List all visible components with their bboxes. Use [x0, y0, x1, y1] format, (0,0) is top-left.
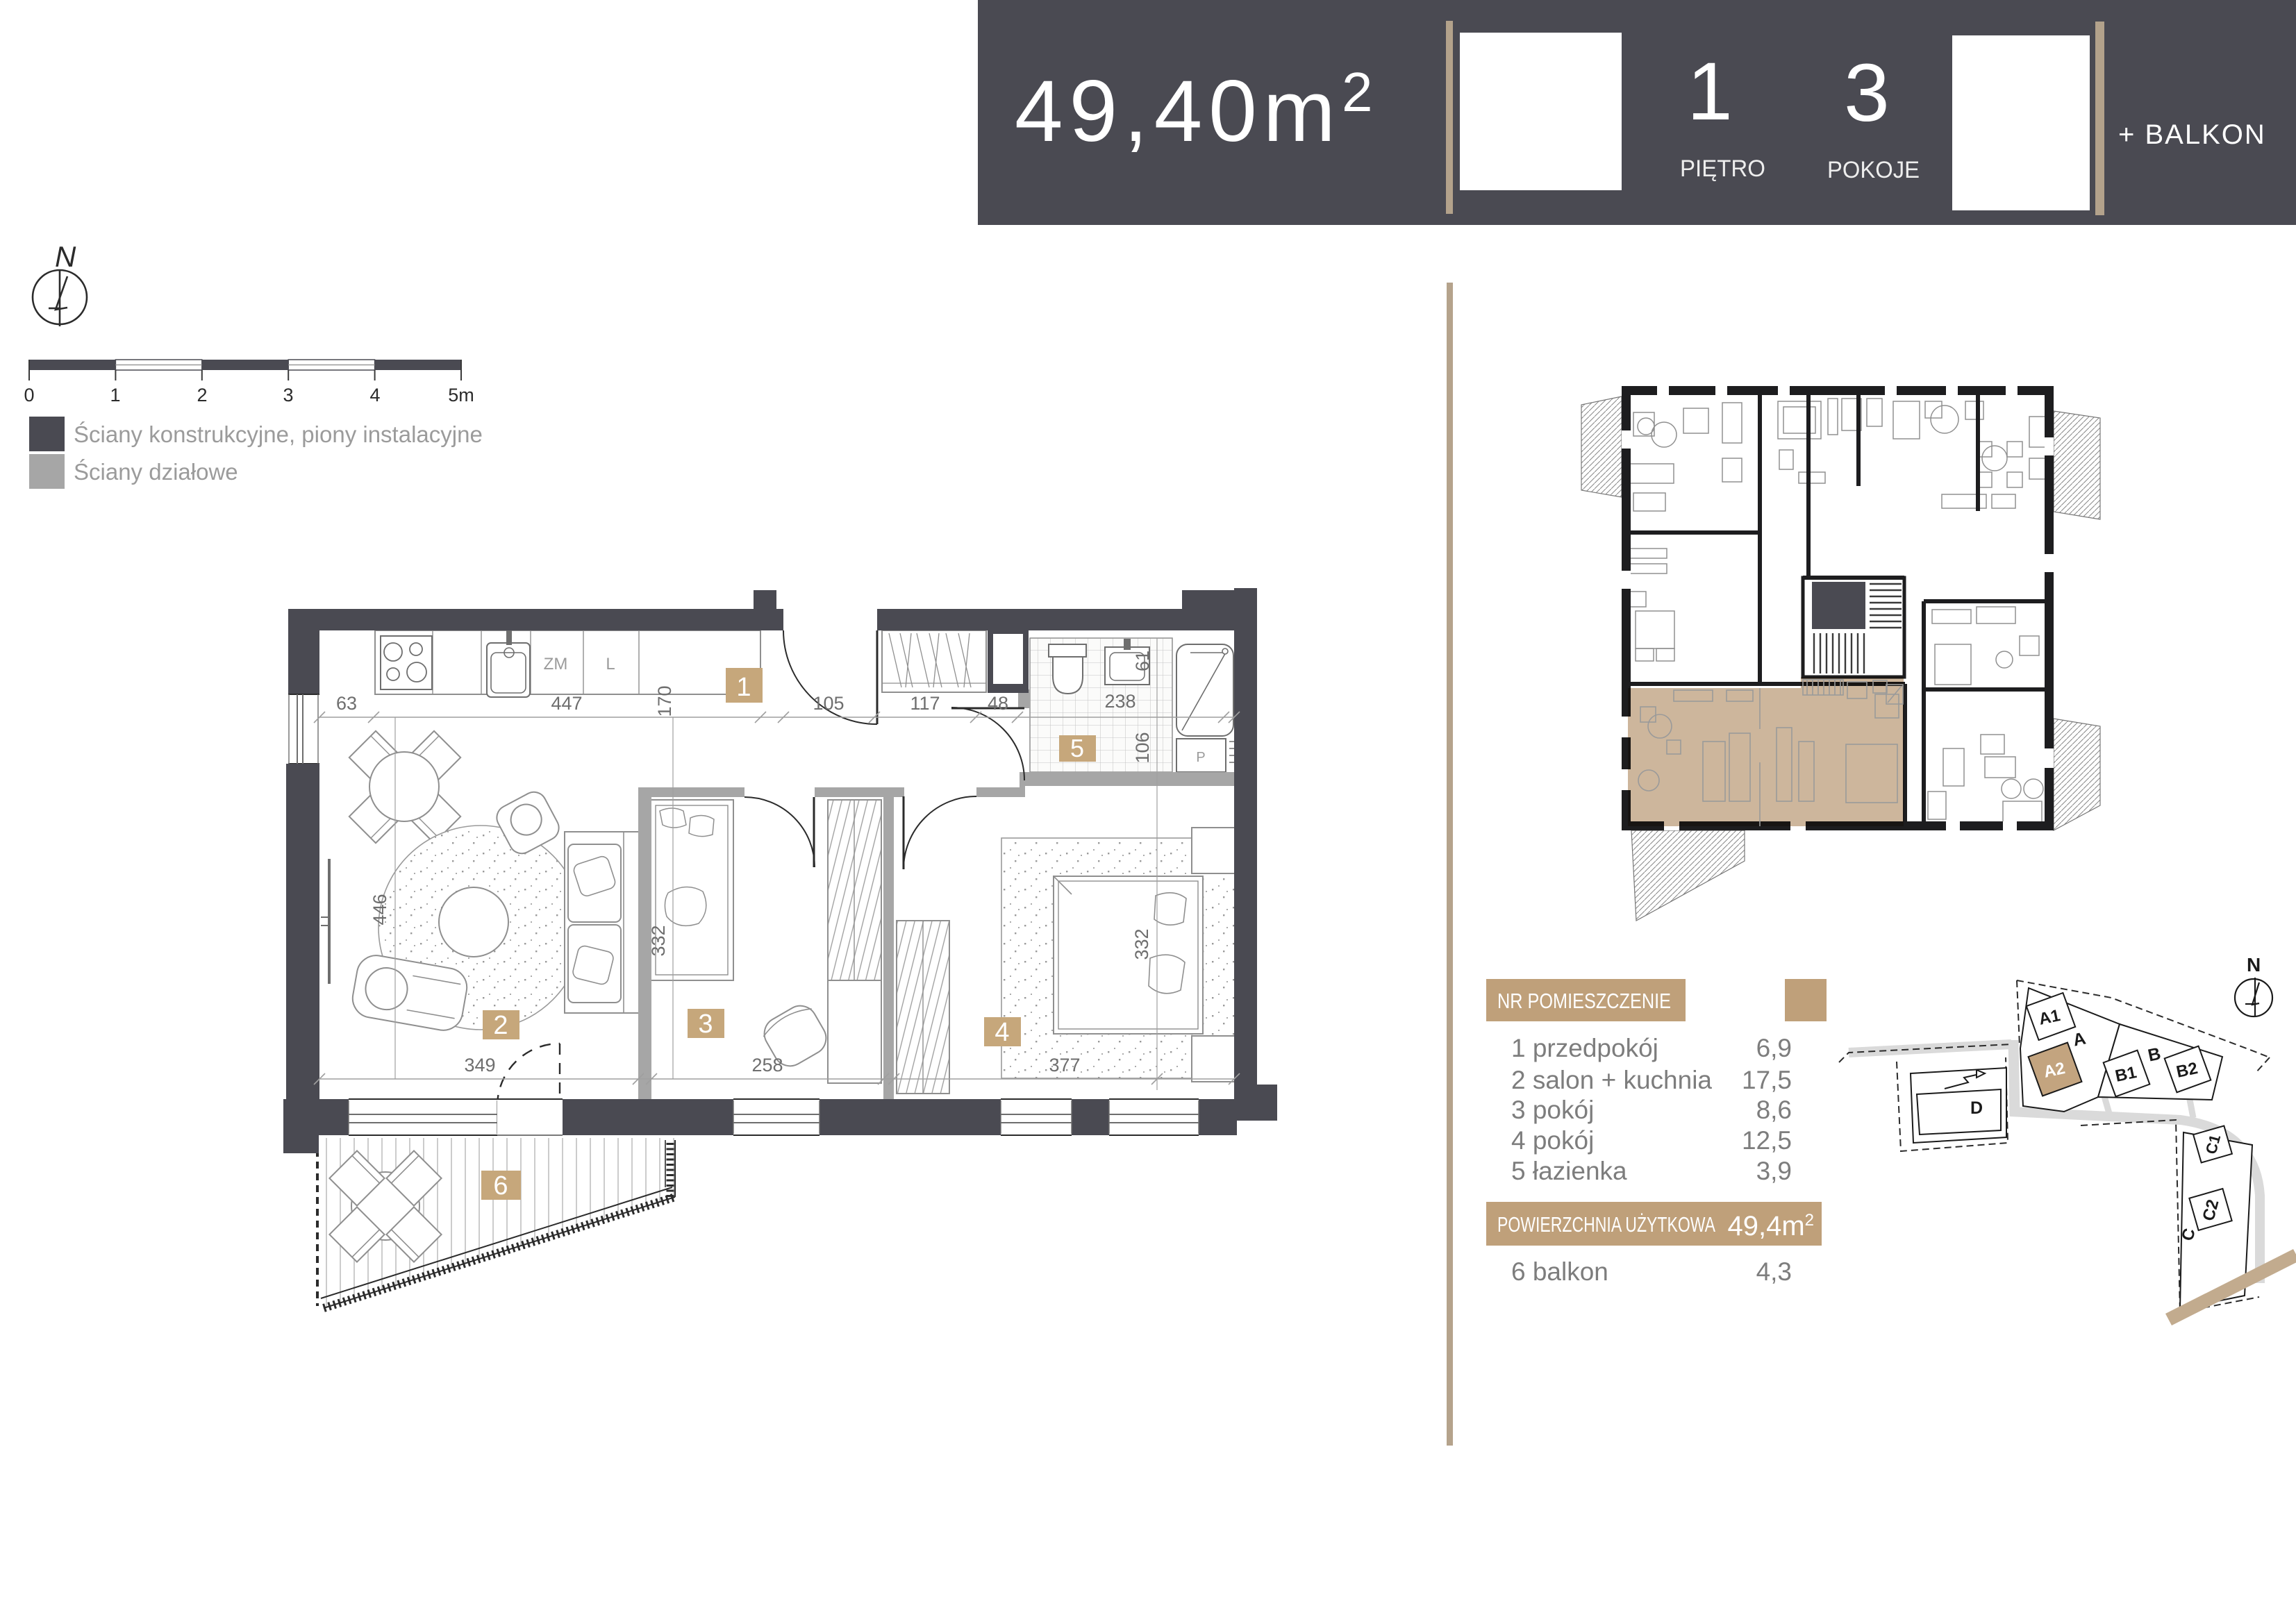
svg-text:N: N	[2247, 954, 2261, 976]
svg-text:P: P	[1196, 750, 1205, 765]
svg-text:1 przedpokój: 1 przedpokój	[1511, 1034, 1658, 1062]
svg-text:61: 61	[1132, 651, 1153, 671]
svg-text:3,9: 3,9	[1756, 1157, 1792, 1185]
svg-text:332: 332	[648, 925, 669, 956]
svg-text:6,9: 6,9	[1756, 1034, 1792, 1062]
svg-text:332: 332	[1131, 928, 1152, 960]
svg-text:4 pokój: 4 pokój	[1511, 1126, 1594, 1155]
svg-text:49,40m2: 49,40m2	[1015, 61, 1372, 160]
svg-text:8,6: 8,6	[1756, 1096, 1792, 1124]
svg-text:117: 117	[910, 693, 940, 714]
svg-text:Ściany konstrukcyjne, piony in: Ściany konstrukcyjne, piony instalacyjne	[74, 421, 483, 447]
svg-text:2 salon + kuchnia: 2 salon + kuchnia	[1511, 1066, 1712, 1094]
svg-text:POKOJE: POKOJE	[1827, 157, 1920, 183]
svg-text:5m: 5m	[448, 385, 474, 405]
svg-text:6: 6	[493, 1171, 508, 1200]
svg-text:1: 1	[110, 385, 120, 405]
svg-text:+ BALKON: + BALKON	[2118, 119, 2266, 150]
svg-text:377: 377	[1049, 1055, 1080, 1075]
svg-text:N: N	[55, 240, 76, 273]
svg-text:0: 0	[24, 385, 34, 405]
svg-text:3: 3	[283, 385, 293, 405]
svg-text:170: 170	[654, 685, 675, 717]
svg-text:PIĘTRO: PIĘTRO	[1680, 156, 1765, 182]
svg-text:49,4m2: 49,4m2	[1727, 1211, 1814, 1241]
svg-text:ZM: ZM	[544, 655, 568, 673]
svg-text:Ściany działowe: Ściany działowe	[74, 458, 238, 485]
svg-text:6 balkon: 6 balkon	[1511, 1257, 1608, 1286]
svg-text:106: 106	[1132, 732, 1153, 763]
svg-text:48: 48	[988, 693, 1008, 714]
svg-text:L: L	[606, 655, 615, 673]
svg-text:3: 3	[698, 1010, 713, 1039]
svg-text:5: 5	[1070, 734, 1084, 762]
svg-text:2: 2	[493, 1011, 508, 1040]
svg-text:2: 2	[197, 385, 207, 405]
svg-text:1: 1	[736, 673, 751, 702]
svg-text:5 łazienka: 5 łazienka	[1511, 1157, 1627, 1185]
svg-text:105: 105	[813, 693, 844, 714]
svg-text:D: D	[1970, 1098, 1983, 1118]
svg-text:63: 63	[336, 693, 357, 714]
svg-text:POWIERZCHNIA UŻYTKOWA: POWIERZCHNIA UŻYTKOWA	[1497, 1212, 1715, 1237]
svg-text:1: 1	[1687, 46, 1733, 137]
svg-text:258: 258	[751, 1055, 783, 1075]
svg-text:446: 446	[369, 894, 390, 925]
svg-text:3: 3	[1844, 47, 1890, 139]
svg-text:17,5: 17,5	[1742, 1066, 1792, 1094]
svg-text:NR POMIESZCZENIE: NR POMIESZCZENIE	[1497, 989, 1671, 1013]
svg-text:4: 4	[369, 385, 380, 405]
svg-text:349: 349	[464, 1055, 495, 1075]
svg-text:238: 238	[1104, 691, 1135, 712]
svg-text:4,3: 4,3	[1756, 1257, 1792, 1286]
svg-text:4: 4	[995, 1018, 1009, 1047]
svg-text:447: 447	[551, 693, 582, 714]
svg-text:12,5: 12,5	[1742, 1126, 1792, 1155]
svg-text:3 pokój: 3 pokój	[1511, 1096, 1594, 1124]
